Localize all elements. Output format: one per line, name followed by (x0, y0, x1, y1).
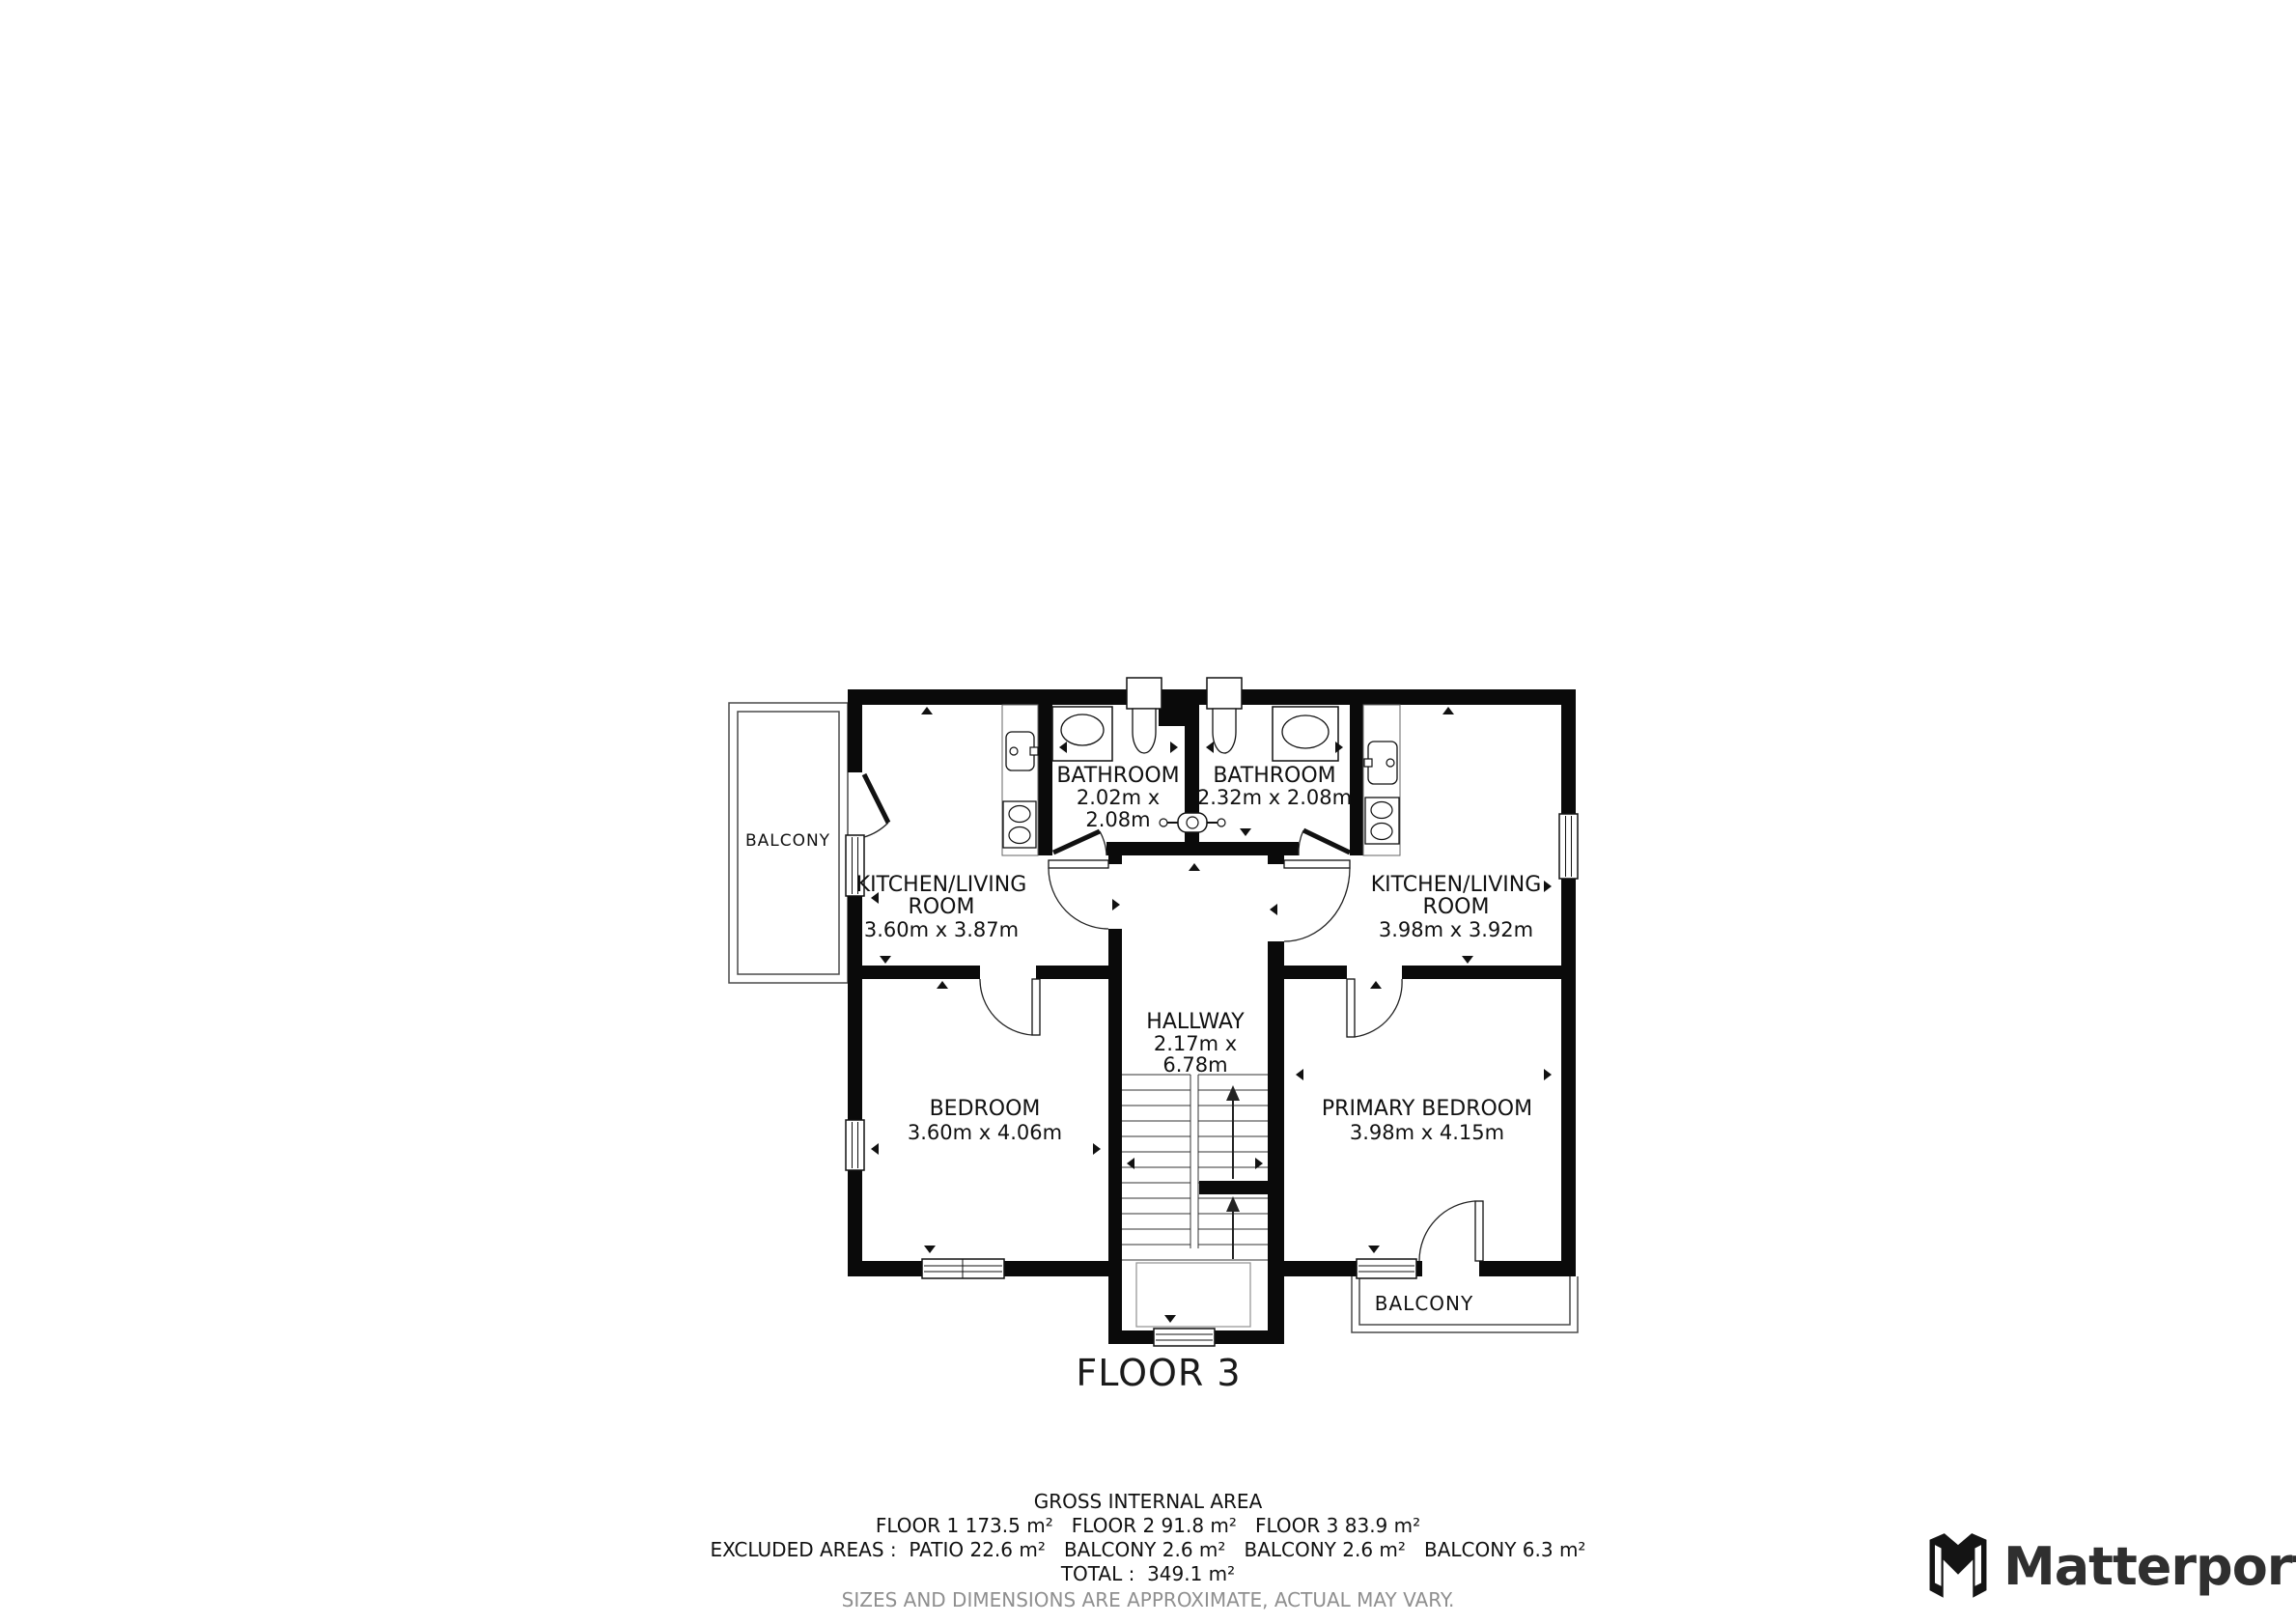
window-primary-bottom (1357, 1259, 1416, 1278)
floor-plan: BATHROOM 2.02m x 2.08m BATHROOM 2.32m x … (705, 666, 1612, 1361)
staircase (1122, 1074, 1268, 1327)
room-label-bathroom-2-dims: 2.32m x 2.08m (1197, 786, 1352, 809)
room-label-kitchen-right-dims: 3.98m x 3.92m (1379, 918, 1533, 941)
matterport-logo: Matterport (1926, 1531, 2296, 1601)
stair-up-arrow-1 (1226, 1085, 1240, 1179)
room-label-bedroom-name: BEDROOM (930, 1097, 1041, 1121)
kitchen-left-counter (1002, 705, 1038, 855)
room-label-kitchen-left-name2: ROOM (909, 895, 975, 919)
gross-internal-area-title: GROSS INTERNAL AREA (0, 1490, 2296, 1513)
window-hallway-bottom (1154, 1329, 1215, 1346)
room-label-primary-bedroom-dims: 3.98m x 4.15m (1350, 1121, 1504, 1144)
door-balcony-bottom (1419, 1201, 1483, 1261)
window-bedroom-bottom (922, 1259, 1004, 1278)
room-label-balcony-bottom: BALCONY (1375, 1292, 1473, 1315)
room-label-bathroom-2-name: BATHROOM (1213, 764, 1335, 788)
door-bathroom-1 (1053, 831, 1106, 855)
toilet-icon (1207, 678, 1242, 709)
room-label-primary-bedroom-name: PRIMARY BEDROOM (1322, 1097, 1532, 1121)
door-hallway-left (1049, 860, 1108, 929)
room-label-kitchen-left-name1: KITCHEN/LIVING (856, 873, 1027, 897)
room-label-hallway-dims2: 6.78m (1162, 1053, 1227, 1077)
stair-divider (1190, 1074, 1198, 1249)
room-label-bathroom-1-dims2: 2.08m (1085, 808, 1150, 831)
kitchen-right-counter (1363, 705, 1400, 855)
towel-radiator-icon (1160, 813, 1225, 832)
door-hallway-right (1284, 860, 1350, 941)
room-label-kitchen-right-name1: KITCHEN/LIVING (1371, 873, 1542, 897)
room-label-balcony-left: BALCONY (745, 831, 830, 851)
floor-title: FLOOR 3 (1014, 1352, 1303, 1394)
room-label-hallway-name: HALLWAY (1146, 1010, 1245, 1034)
stair-landing (1136, 1263, 1250, 1327)
room-label-bedroom-dims: 3.60m x 4.06m (908, 1121, 1062, 1144)
door-bathroom-2 (1299, 830, 1350, 855)
stair-up-arrow-2 (1226, 1196, 1240, 1259)
room-label-bathroom-1-dims: 2.02m x (1077, 786, 1160, 809)
room-label-kitchen-right-name2: ROOM (1423, 895, 1490, 919)
room-label-bathroom-1-name: BATHROOM (1056, 764, 1179, 788)
window-bedroom-left (846, 1120, 864, 1170)
room-label-kitchen-left-dims: 3.60m x 3.87m (864, 918, 1019, 941)
matterport-logo-text: Matterport (2003, 1536, 2296, 1597)
window-kitchen-right-wall (1559, 814, 1578, 879)
room-label-hallway-dims1: 2.17m x (1154, 1032, 1237, 1055)
door-bedroom (980, 979, 1040, 1035)
matterport-m-icon (1926, 1531, 1990, 1601)
toilet-icon (1127, 678, 1162, 709)
door-balcony (864, 774, 888, 837)
floorplan-page: BATHROOM 2.02m x 2.08m BATHROOM 2.32m x … (0, 0, 2296, 1624)
stair-wall-bar (1199, 1181, 1268, 1194)
